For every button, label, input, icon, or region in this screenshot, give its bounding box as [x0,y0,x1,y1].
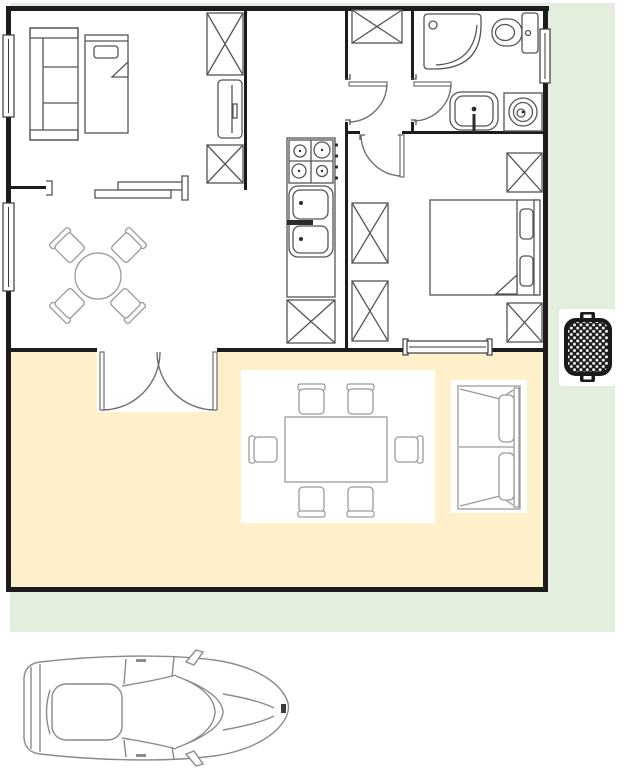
patio [241,370,527,523]
crossed-box-bottom [207,145,243,183]
grill-body [566,320,610,374]
patio-table [285,417,387,482]
car-top-view [24,650,289,766]
faucet [287,220,313,225]
wall-right [543,6,548,592]
floor-plan-drawing [0,0,625,768]
outdoor-sofa [458,386,520,509]
chair [347,487,374,517]
chair [298,384,325,414]
kitchen [287,138,338,343]
window-living-upper [3,35,14,117]
window-bathroom [540,29,550,83]
chair [347,384,374,414]
wall-hall-west-lower [345,122,348,352]
chair [298,487,325,517]
chair [395,436,423,463]
crossed-wardrobe-right-2 [507,303,542,342]
wall-patio-divider-left [6,348,97,352]
pillow [520,256,533,286]
daybed [85,35,128,133]
car-door-handle [136,659,146,662]
shelving-cabinet [30,28,78,140]
pillow [520,209,533,239]
bbq-grill [559,309,615,386]
wall-patio-divider-right [217,348,547,352]
window-bedroom [403,339,492,355]
wall-bath-west-upper [411,8,414,80]
washbasin [450,92,498,133]
wall-patio-bottom [6,587,548,592]
crossed-wardrobe-left-2 [352,281,388,341]
crossed-closet [352,10,402,43]
wall-bedroom-top-left [345,131,360,134]
crossed-box-top [207,13,243,75]
wall-livingroom-east [244,8,247,190]
hallway [352,10,402,43]
wall-hall-west-upper [345,8,348,80]
tv-cabinet [218,80,242,138]
car-door-handle [136,754,146,757]
round-table [75,253,121,299]
basin-stand [473,114,476,133]
double-bed [430,200,540,295]
window-living-lower [3,203,14,291]
back-cushion [499,453,514,500]
crossed-cabinet [287,300,335,343]
french-door-patio [97,346,217,412]
crossed-wardrobe-right-1 [507,153,542,192]
washing-machine [504,93,542,131]
wall-stub-living [8,186,46,189]
back-cushion [499,395,514,442]
car-front-emblem [281,704,286,713]
floor-plan-page [0,0,625,768]
chair [249,436,277,463]
wall-top [6,6,549,11]
crossed-wardrobe-left-1 [352,203,388,263]
